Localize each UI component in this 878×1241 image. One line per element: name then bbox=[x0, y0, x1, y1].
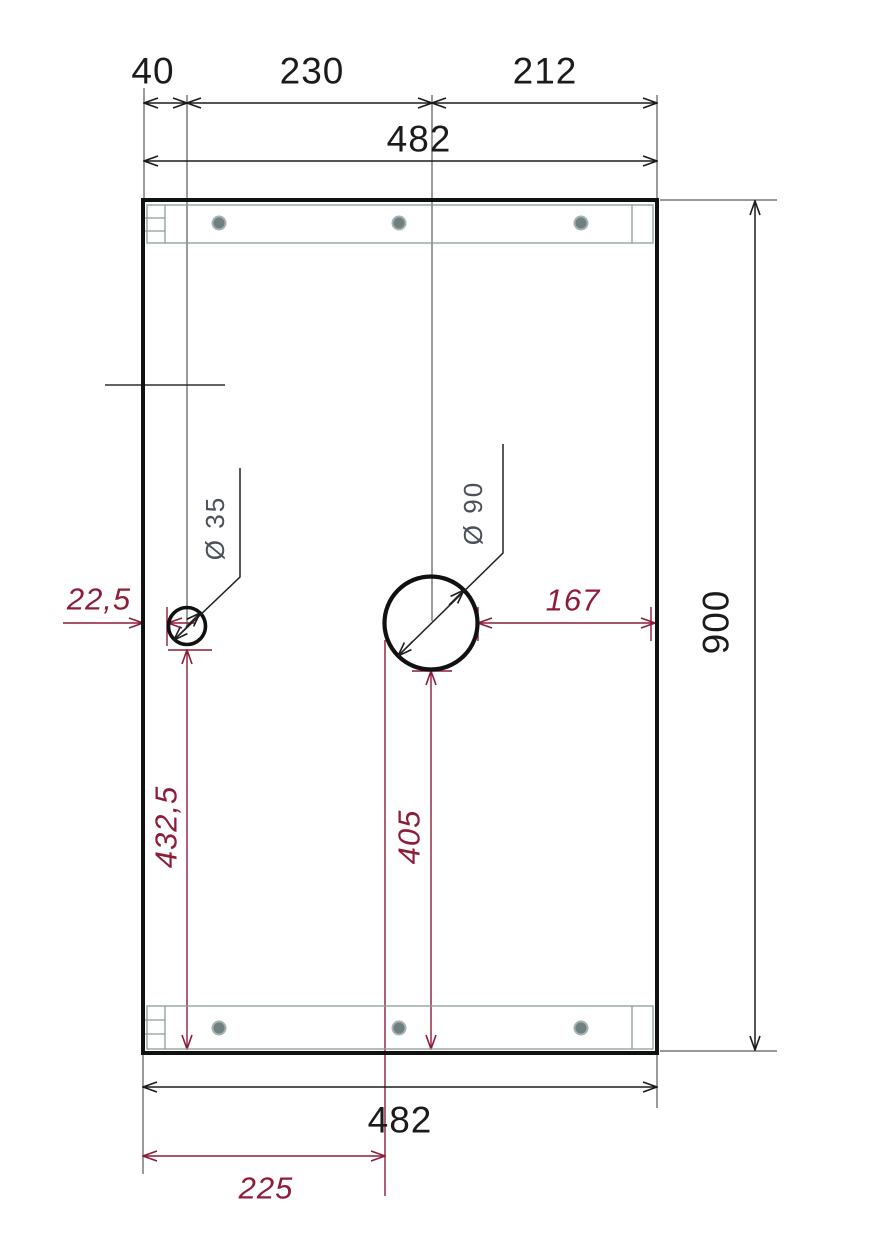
red-dimension-lines bbox=[63, 607, 655, 1196]
dim-large-hole-bottom-offset-label: 405 bbox=[394, 810, 425, 865]
dim-bottom-overall-482-label: 482 bbox=[368, 1102, 433, 1139]
dim-bottom-offset-225-label: 225 bbox=[239, 1173, 294, 1204]
diameter-35-label: Ø 35 bbox=[202, 496, 228, 560]
dim-small-hole-bottom-offset-label: 432,5 bbox=[151, 786, 182, 869]
dim-top-40-label: 40 bbox=[131, 53, 174, 90]
technical-drawing-canvas bbox=[0, 0, 878, 1241]
dim-top-212-label: 212 bbox=[513, 53, 578, 90]
screw-icon bbox=[213, 1022, 226, 1035]
screw-icon bbox=[393, 217, 406, 230]
black-dimension-lines bbox=[143, 103, 755, 1087]
technical-drawing-page: 40 230 212 482 900 482 22,5 167 432,5 40… bbox=[0, 0, 878, 1241]
screw-icon bbox=[213, 217, 226, 230]
dim-top-overall-482-label: 482 bbox=[387, 121, 452, 158]
screw-icon bbox=[393, 1022, 406, 1035]
panel-outline bbox=[143, 200, 657, 1053]
dim-top-230-label: 230 bbox=[280, 53, 345, 90]
screw-icons bbox=[213, 217, 588, 1035]
dim-large-hole-right-offset-label: 167 bbox=[546, 585, 601, 616]
screw-icon bbox=[575, 1022, 588, 1035]
dim-small-hole-left-offset-label: 22,5 bbox=[67, 584, 131, 615]
extension-lines bbox=[143, 88, 777, 1174]
diameter-90-label: Ø 90 bbox=[460, 481, 486, 545]
screw-icon bbox=[575, 217, 588, 230]
dim-height-900-label: 900 bbox=[698, 590, 735, 655]
